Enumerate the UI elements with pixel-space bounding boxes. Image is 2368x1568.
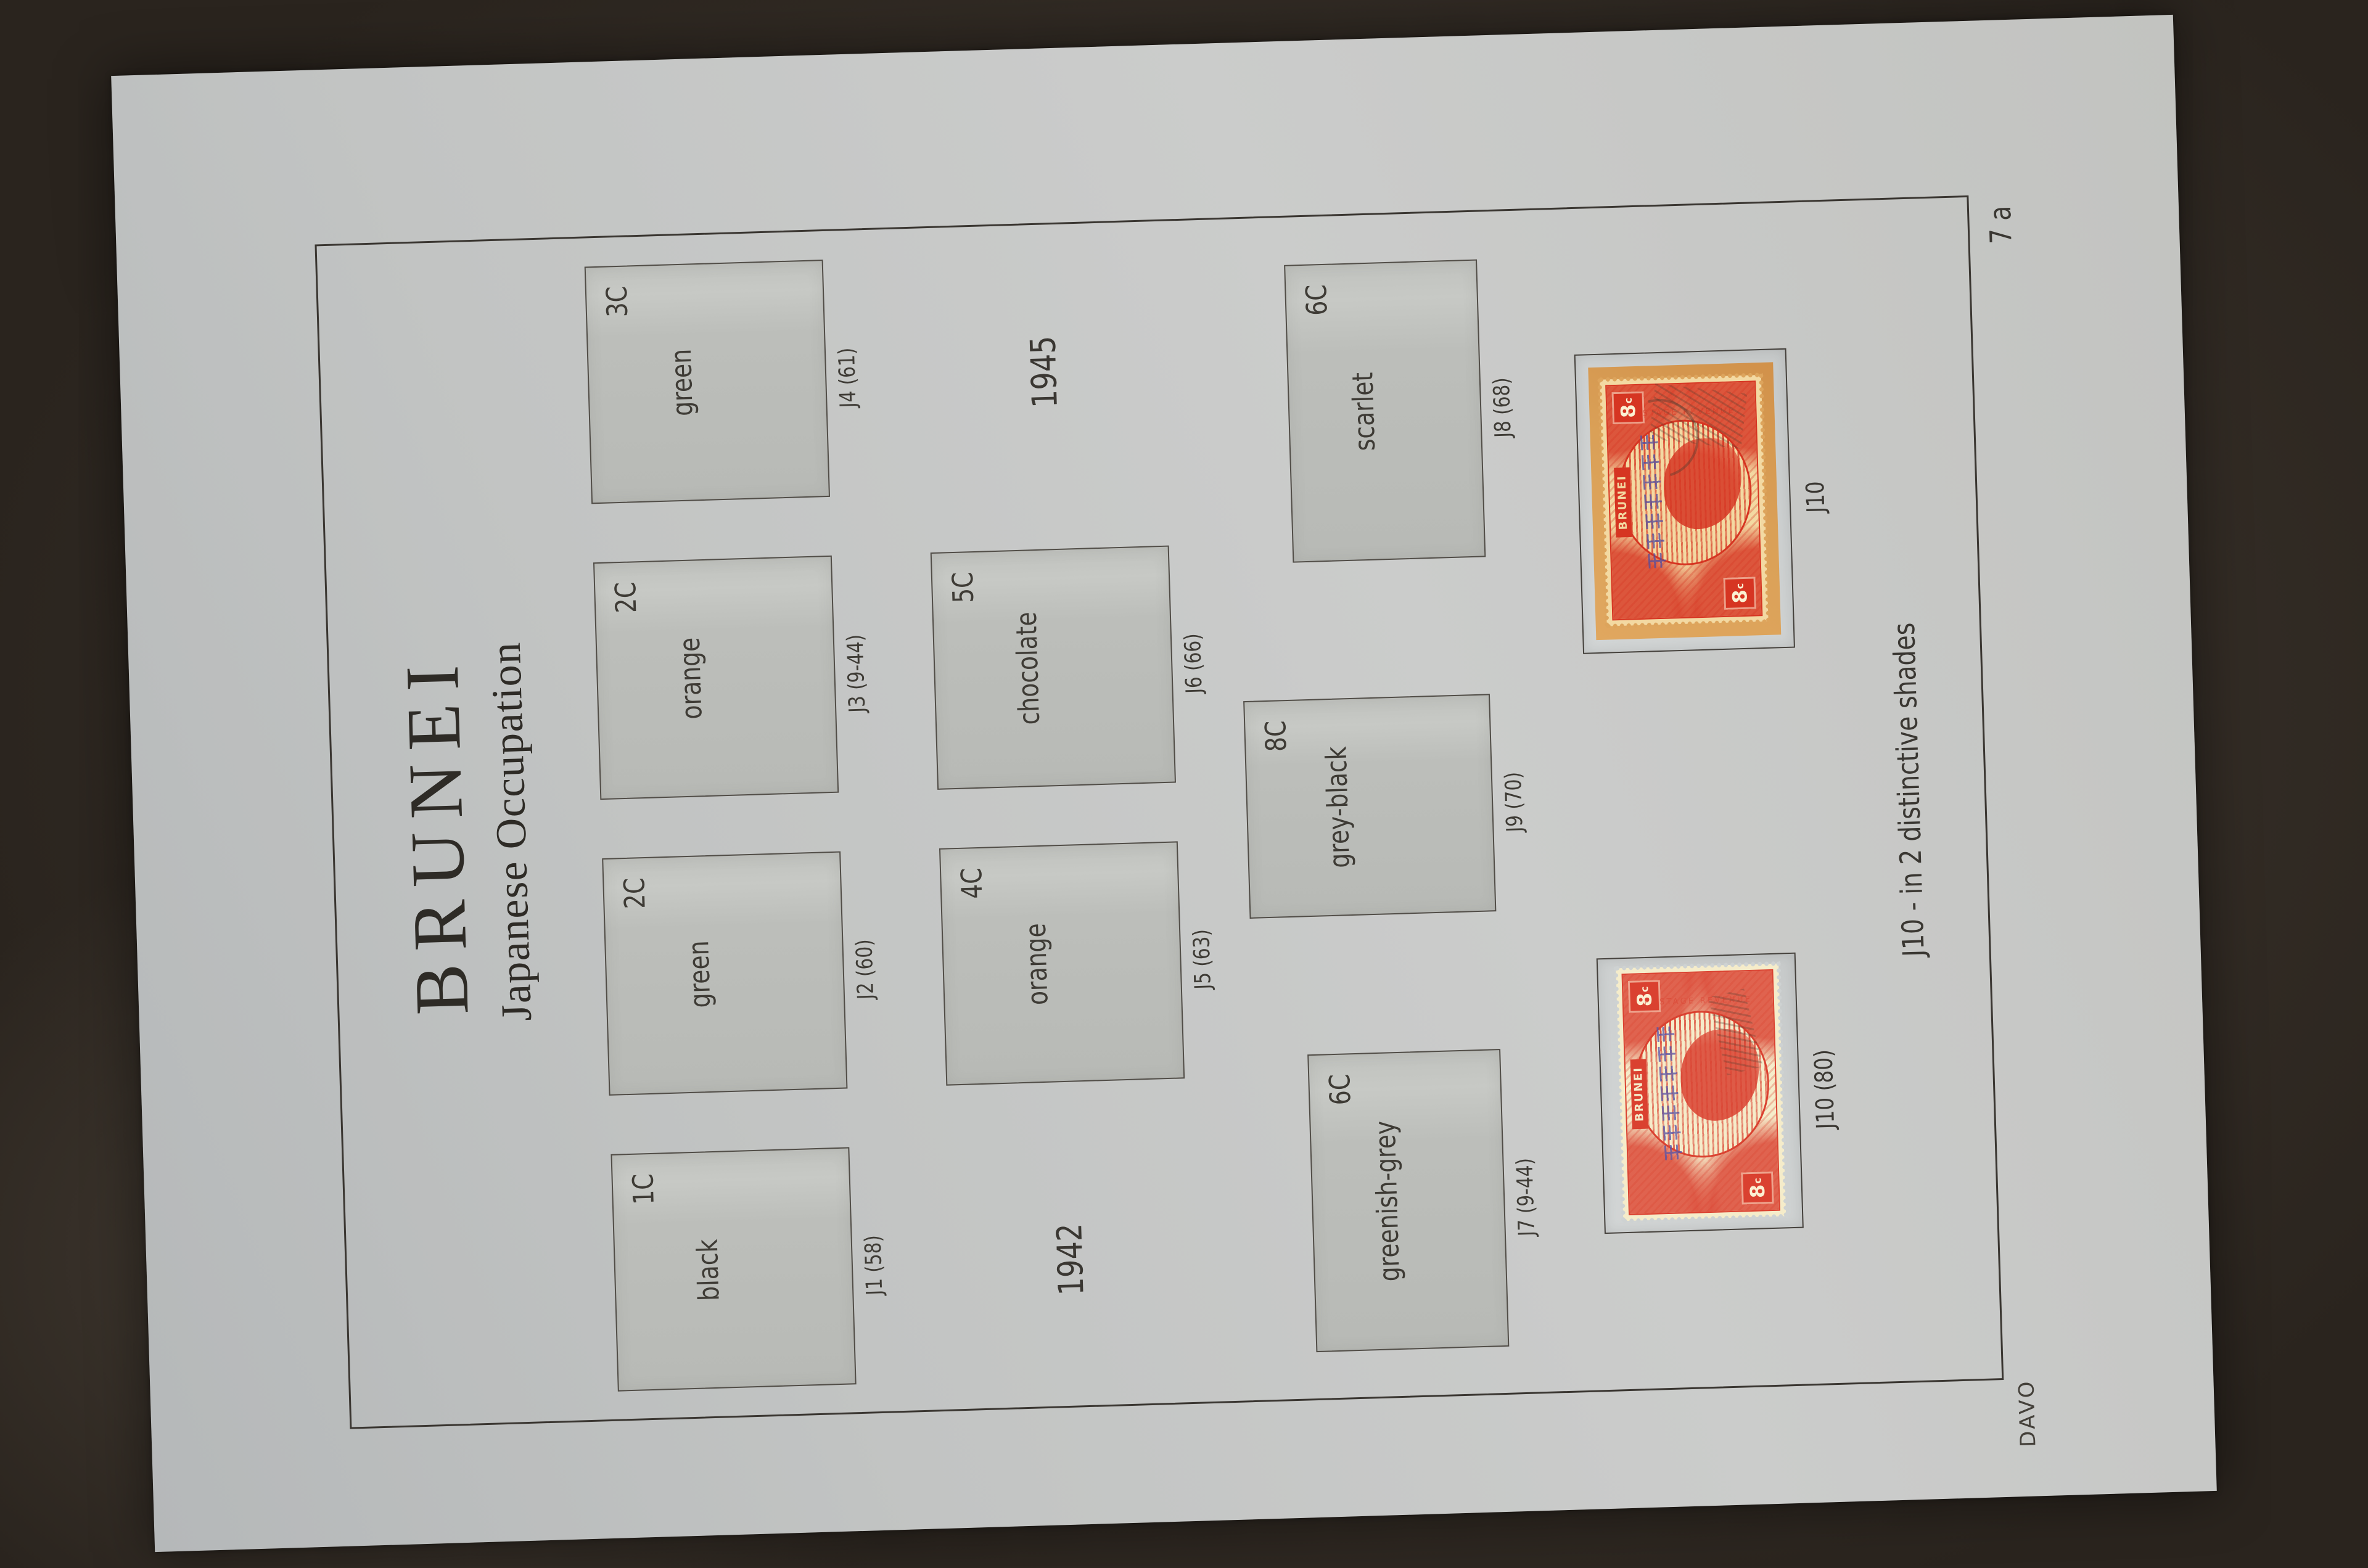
value-label: 8C xyxy=(1259,720,1293,752)
country-banner: BRUNEI xyxy=(1630,1059,1648,1129)
stamp-space-J4: 3C green J4 (61) xyxy=(585,258,864,504)
stamp-J10-pale-shade: BRUNEI 8c 8c POSTAGE REVENUE xyxy=(1616,964,1786,1221)
currency: c xyxy=(1638,986,1650,992)
value-label: 1C xyxy=(626,1173,660,1205)
catalog-caption: J6 (66) xyxy=(1180,633,1207,694)
cancel-mark xyxy=(1649,384,1747,449)
color-label: green xyxy=(680,877,718,1071)
value-label: 2C xyxy=(609,581,643,614)
stamp-mount: BRUNEI 8c 8c POSTAGE REVENUE xyxy=(1574,348,1795,654)
mounted-stamp-J10-on-piece: BRUNEI 8c 8c POSTAGE REVENUE J10 xyxy=(1574,347,1835,654)
page-number: 7 a xyxy=(1983,205,2019,244)
color-label: black xyxy=(688,1173,727,1367)
stamp-box: 8C grey-black xyxy=(1243,694,1496,919)
year-1945: 1945 xyxy=(921,250,1167,494)
stamp-space-J1: 1C black J1 (58) xyxy=(610,1146,890,1392)
color-label: scarlet xyxy=(1343,290,1384,533)
publisher-logo: DAVO xyxy=(2014,1379,2041,1448)
stamp-box: 2C green xyxy=(602,852,847,1096)
currency: c xyxy=(1733,583,1745,589)
stamp-design: BRUNEI 8c 8c POSTAGE REVENUE xyxy=(1621,969,1780,1215)
stamp-mount: BRUNEI 8c 8c POSTAGE REVENUE xyxy=(1597,953,1804,1234)
stamp-box: 1C black xyxy=(610,1147,856,1391)
color-label: greenish-grey xyxy=(1367,1080,1407,1323)
catalog-caption: J8 (68) xyxy=(1489,377,1516,438)
catalog-caption: J7 (9-44) xyxy=(1512,1157,1540,1236)
stamp-box: 6C scarlet xyxy=(1284,260,1486,563)
value-label: 5C xyxy=(946,572,980,604)
color-label: orange xyxy=(671,581,710,775)
value-label: 6C xyxy=(1323,1073,1357,1106)
stamp-space-J7: 6C greenish-grey J7 (9-44) xyxy=(1307,1048,1543,1352)
value-label: 2C xyxy=(617,877,651,909)
country-banner: BRUNEI xyxy=(1614,467,1632,538)
stamp-space-J9: 8C grey-black J9 (70) xyxy=(1243,693,1530,919)
catalog-caption: J1 (58) xyxy=(861,1234,888,1295)
catalog-caption: J2 (60) xyxy=(852,939,879,1000)
value-label: 6C xyxy=(1299,284,1333,316)
value-tablet: 8c xyxy=(1724,577,1757,610)
currency: c xyxy=(1622,398,1634,404)
denomination: 8 xyxy=(1728,589,1752,604)
stamp-design: BRUNEI 8c 8c POSTAGE REVENUE xyxy=(1605,380,1762,620)
stamp-space-J2: 2C green J2 (60) xyxy=(602,850,881,1096)
year-text: 1945 xyxy=(1023,335,1065,409)
denomination: 8 xyxy=(1746,1184,1770,1198)
year-1942: 1942 xyxy=(948,1137,1193,1381)
value-label: 3C xyxy=(600,286,634,318)
stamp-space-J5: 4C orange J5 (63) xyxy=(939,840,1219,1086)
mounted-stamp-J10-pale: BRUNEI 8c 8c POSTAGE REVENUE J10 (80) xyxy=(1597,951,1843,1234)
catalog-caption: J3 (9-44) xyxy=(843,634,871,713)
value-label: 4C xyxy=(955,868,989,900)
catalog-caption: J5 (63) xyxy=(1189,929,1216,990)
stamp-box: 4C orange xyxy=(939,841,1185,1085)
stamp-space-J3: 2C orange J3 (9-44) xyxy=(593,554,873,800)
stamp-space-J8: 6C scarlet J8 (68) xyxy=(1284,258,1519,563)
stamp-box: 6C greenish-grey xyxy=(1307,1049,1509,1352)
color-label: chocolate xyxy=(1008,572,1046,765)
year-text: 1942 xyxy=(1050,1223,1091,1296)
stamp-caption: J10 xyxy=(1801,481,1831,514)
catalog-caption: J9 (70) xyxy=(1501,771,1528,832)
stamp-box: 5C chocolate xyxy=(931,546,1176,790)
catalog-caption: J4 (61) xyxy=(834,347,861,408)
album-page: BRUNEI Japanese Occupation 1C black J1 (… xyxy=(111,15,2217,1552)
color-label: grey-black xyxy=(1318,718,1357,896)
currency: c xyxy=(1751,1178,1763,1184)
stamp-box: 2C orange xyxy=(593,556,839,800)
color-label: green xyxy=(662,285,701,479)
stamp-caption: J10 (80) xyxy=(1809,1049,1840,1130)
value-tablet: 8c xyxy=(1628,980,1661,1013)
color-label: orange xyxy=(1017,868,1056,1061)
photo-of-album-page: BRUNEI Japanese Occupation 1C black J1 (… xyxy=(0,0,2368,1568)
value-tablet: 8c xyxy=(1741,1172,1774,1205)
stamp-space-J6: 5C chocolate J6 (66) xyxy=(931,544,1210,790)
stamp-J10-orange-shade: BRUNEI 8c 8c POSTAGE REVENUE xyxy=(1600,375,1769,626)
stamp-box: 3C green xyxy=(585,260,830,504)
